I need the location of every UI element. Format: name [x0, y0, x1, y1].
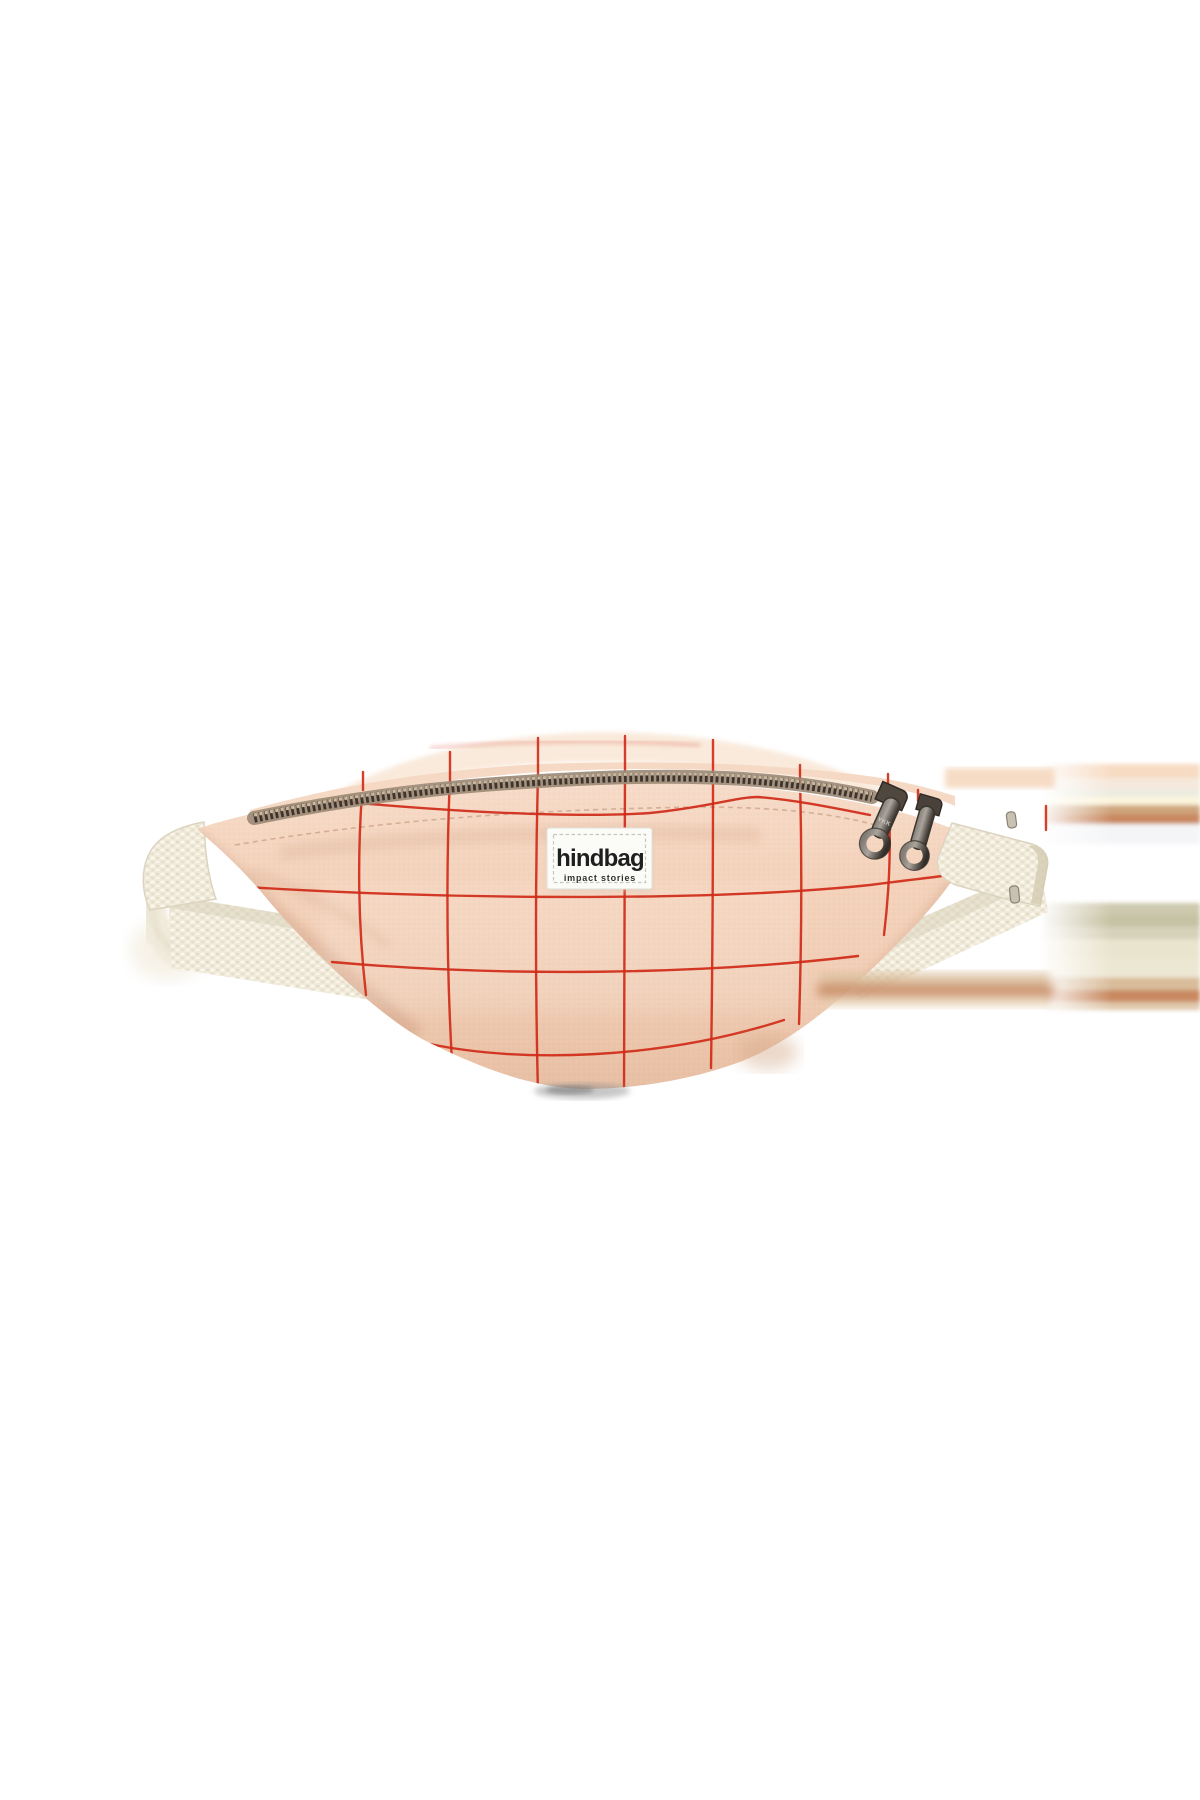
strap-right-upper: [937, 823, 1047, 906]
label-tagline-text: impact stories: [564, 873, 636, 883]
foreground-blur-streak: [818, 973, 1054, 1006]
strap-adjuster-pin-top: [1006, 811, 1017, 828]
foreground-blur-streak-right-edge: [1042, 977, 1200, 1010]
bum-bag-product-image: YKK hindbag impact stories: [0, 0, 1200, 1800]
bottom-shadow-core: [546, 1086, 594, 1095]
right-edge-blur-bands: [1042, 764, 1200, 977]
label-brand-text: hindbag: [556, 845, 644, 872]
blur-patch-bottom-right: [738, 1034, 798, 1070]
top-panel-right-extension: [945, 768, 1055, 788]
strap-adjuster-pin-bottom: [1009, 886, 1020, 904]
brand-label: hindbag impact stories: [547, 828, 652, 891]
fabric-highlight: [320, 880, 800, 1010]
strap-right: [937, 811, 1048, 906]
product-photo-canvas: YKK hindbag impact stories: [0, 0, 1200, 1800]
